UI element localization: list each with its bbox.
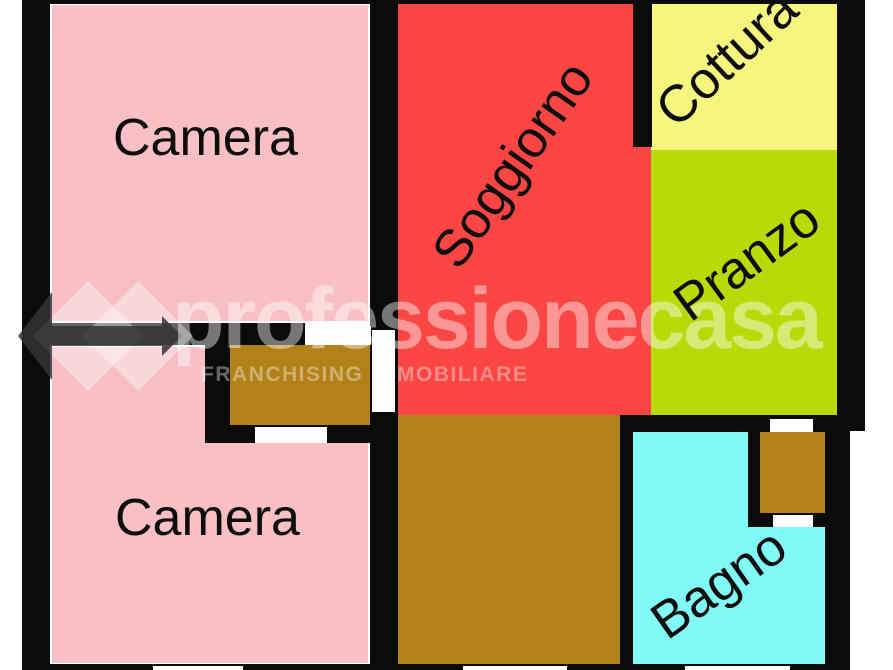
opening-bottom-left	[153, 666, 243, 670]
room-label-camera-top: Camera	[113, 112, 298, 164]
window-right-notch	[850, 431, 865, 445]
door-shaft-top-opening	[770, 419, 813, 432]
area-corridor-upper	[230, 345, 372, 425]
wall-top	[22, 0, 865, 4]
wall-right-upper	[837, 0, 865, 445]
area-shaft-box	[760, 432, 825, 513]
opening-bottom-right	[685, 666, 790, 670]
wall-soggiorno-cottura	[633, 0, 652, 147]
room-soggiorno	[398, 3, 651, 415]
floorplan-image: professionecasa FRANCHISING IMMOBILIARE …	[0, 0, 893, 670]
door-shaft-bottom-opening	[773, 515, 813, 527]
wall-bagno-left	[620, 415, 633, 667]
wall-right-lower	[825, 431, 850, 670]
area-corridor-main	[398, 415, 620, 667]
wall-camera-corridor	[205, 345, 230, 443]
door-camera-top-opening	[305, 326, 371, 345]
opening-bottom-middle	[463, 666, 567, 670]
door-soggiorno-opening	[372, 330, 395, 412]
door-camera-bottom-opening	[255, 427, 327, 443]
room-label-camera-bottom: Camera	[115, 492, 300, 544]
wall-between-cameras	[22, 323, 305, 345]
wall-below-pranzo	[620, 415, 865, 432]
